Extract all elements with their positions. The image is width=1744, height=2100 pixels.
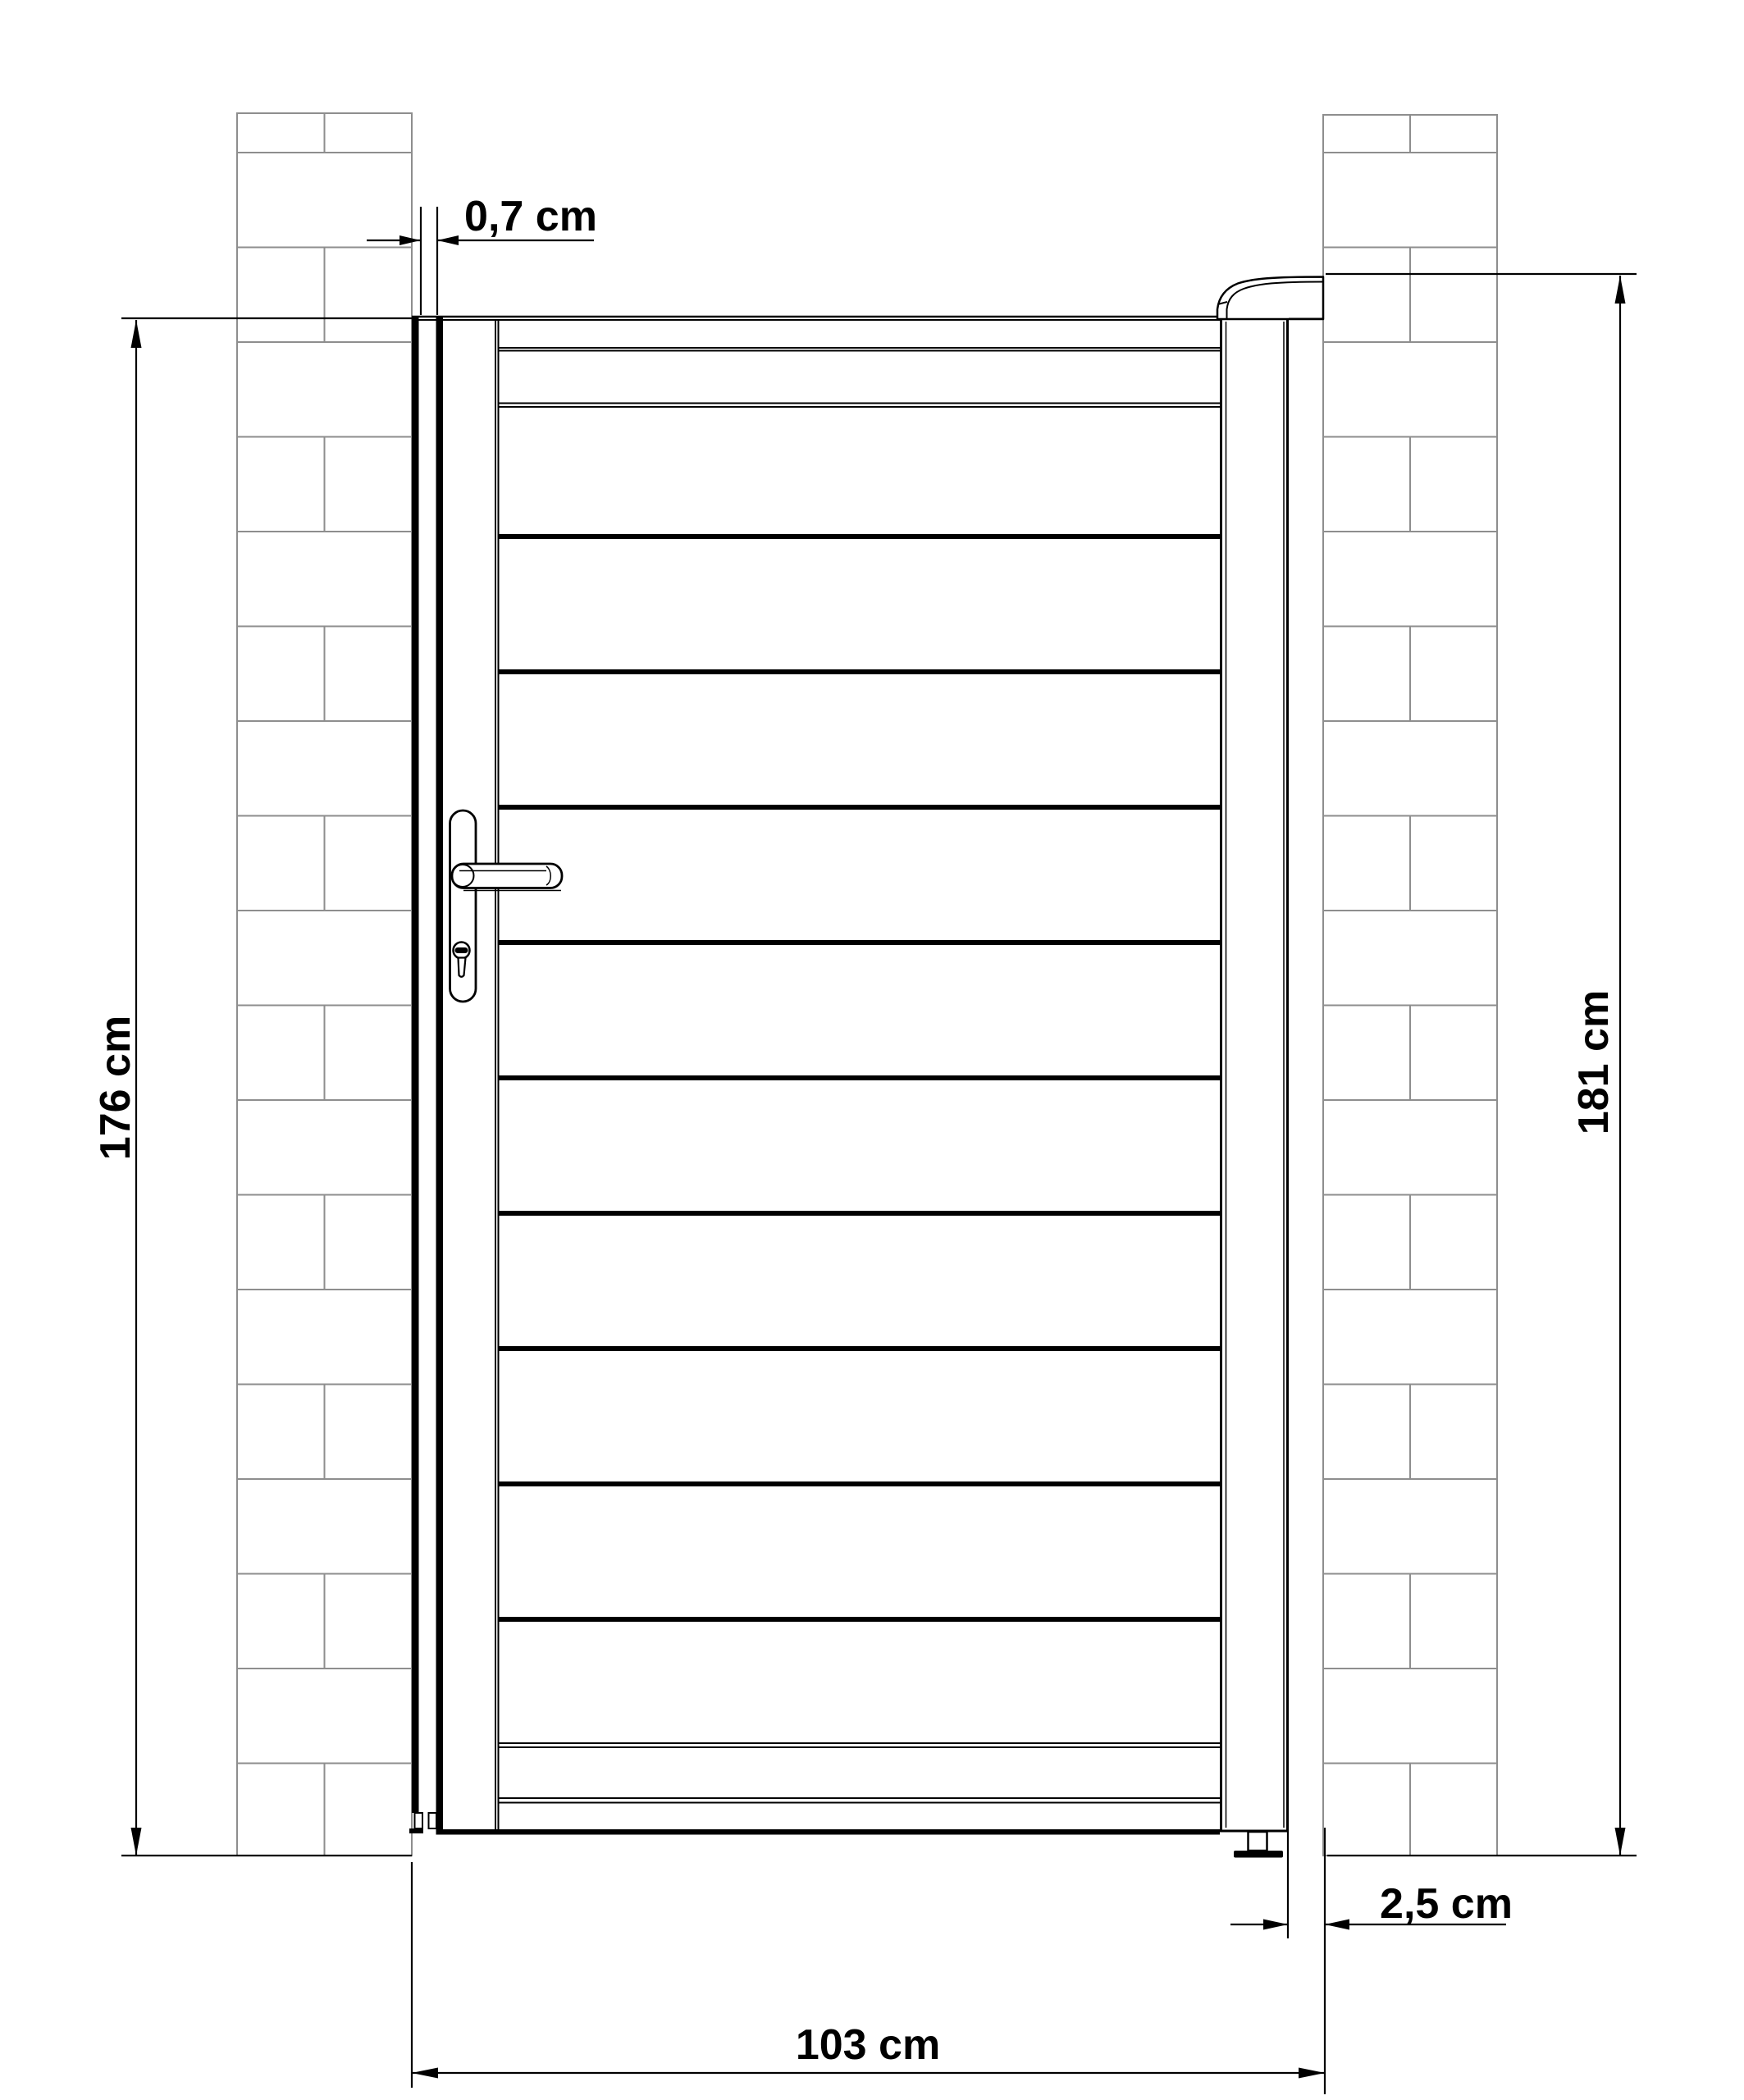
dimension-opening-width: 103 cm	[412, 1862, 1325, 2088]
hinge-post-foot-right	[429, 1813, 437, 1828]
hinge-post-wall-left	[412, 317, 419, 1813]
arrowhead-left-icon	[437, 235, 459, 245]
arrowhead-right-icon	[1263, 1920, 1288, 1930]
pillar-right-body	[1323, 115, 1497, 1856]
dimension-label-latch-gap: 2,5 cm	[1380, 1880, 1513, 1928]
cylinder-cam	[455, 947, 468, 953]
foot-stem	[1249, 1832, 1267, 1851]
hanging-stile	[443, 318, 499, 1829]
cylinder-slot	[459, 958, 466, 977]
dimension-label-total-height: 181 cm	[1570, 990, 1618, 1134]
masonry-pillar-left	[237, 113, 412, 1856]
hinge-post-wall-right	[436, 317, 444, 1831]
foot-base-plate	[1234, 1851, 1283, 1858]
dimension-label-opening-width: 103 cm	[796, 2021, 940, 2069]
arrowhead-up-icon	[1615, 276, 1626, 304]
masonry-pillar-right	[1323, 115, 1497, 1856]
handle-set	[450, 810, 563, 1002]
gate-slats	[499, 348, 1220, 1803]
gate-technical-drawing: 0,7 cm 176 cm 181 cm 2,5 cm 103 cm	[0, 0, 1744, 2100]
dimension-latch-gap: 2,5 cm	[1230, 1828, 1513, 2094]
latch-post	[1217, 277, 1323, 1858]
arrowhead-down-icon	[1615, 1828, 1626, 1856]
dimension-label-gate-height: 176 cm	[92, 1016, 139, 1160]
arrowhead-right-icon	[1299, 2068, 1325, 2079]
arrowhead-up-icon	[131, 320, 142, 348]
arrowhead-left-icon	[412, 2068, 438, 2079]
gate-bottom-edge	[436, 1829, 1221, 1835]
hinge-post	[409, 317, 443, 1833]
latch-post-body	[1221, 319, 1288, 1832]
dimension-label-hinge-gap: 0,7 cm	[464, 193, 597, 240]
pillar-left-body	[237, 113, 412, 1856]
arrowhead-left-icon	[1325, 1920, 1349, 1930]
stile-face	[443, 318, 495, 1829]
adjustable-foot	[1234, 1832, 1283, 1858]
gate-leaf	[409, 277, 1323, 1858]
hinge-post-foot-left	[415, 1813, 423, 1828]
arrowhead-down-icon	[131, 1828, 142, 1856]
hinge-post-foot-base	[409, 1828, 423, 1833]
